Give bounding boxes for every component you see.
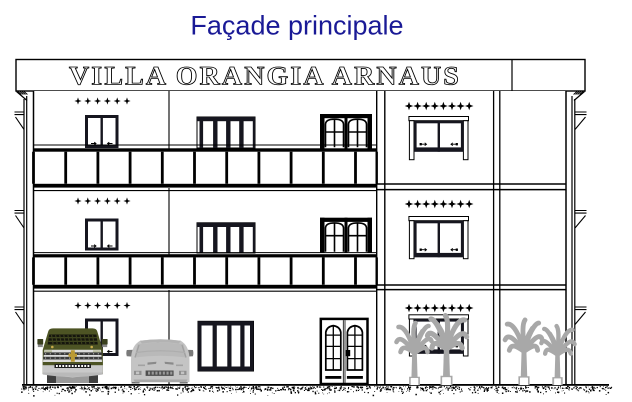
svg-text:VILLA ORANGIA ARNAUS: VILLA ORANGIA ARNAUS	[69, 62, 461, 91]
svg-text:Façade principale: Façade principale	[190, 11, 403, 41]
